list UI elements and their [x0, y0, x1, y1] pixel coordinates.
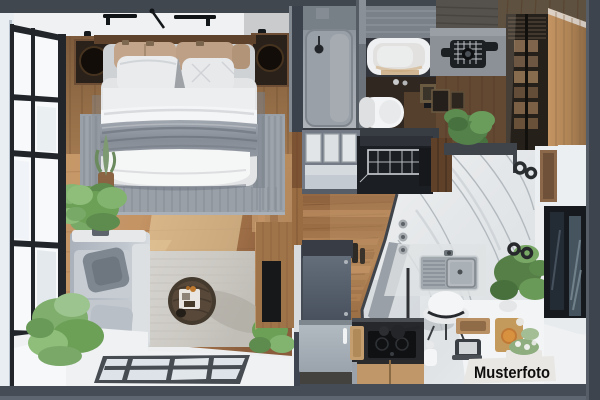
- svg-text:Musterfoto: Musterfoto: [474, 363, 550, 382]
